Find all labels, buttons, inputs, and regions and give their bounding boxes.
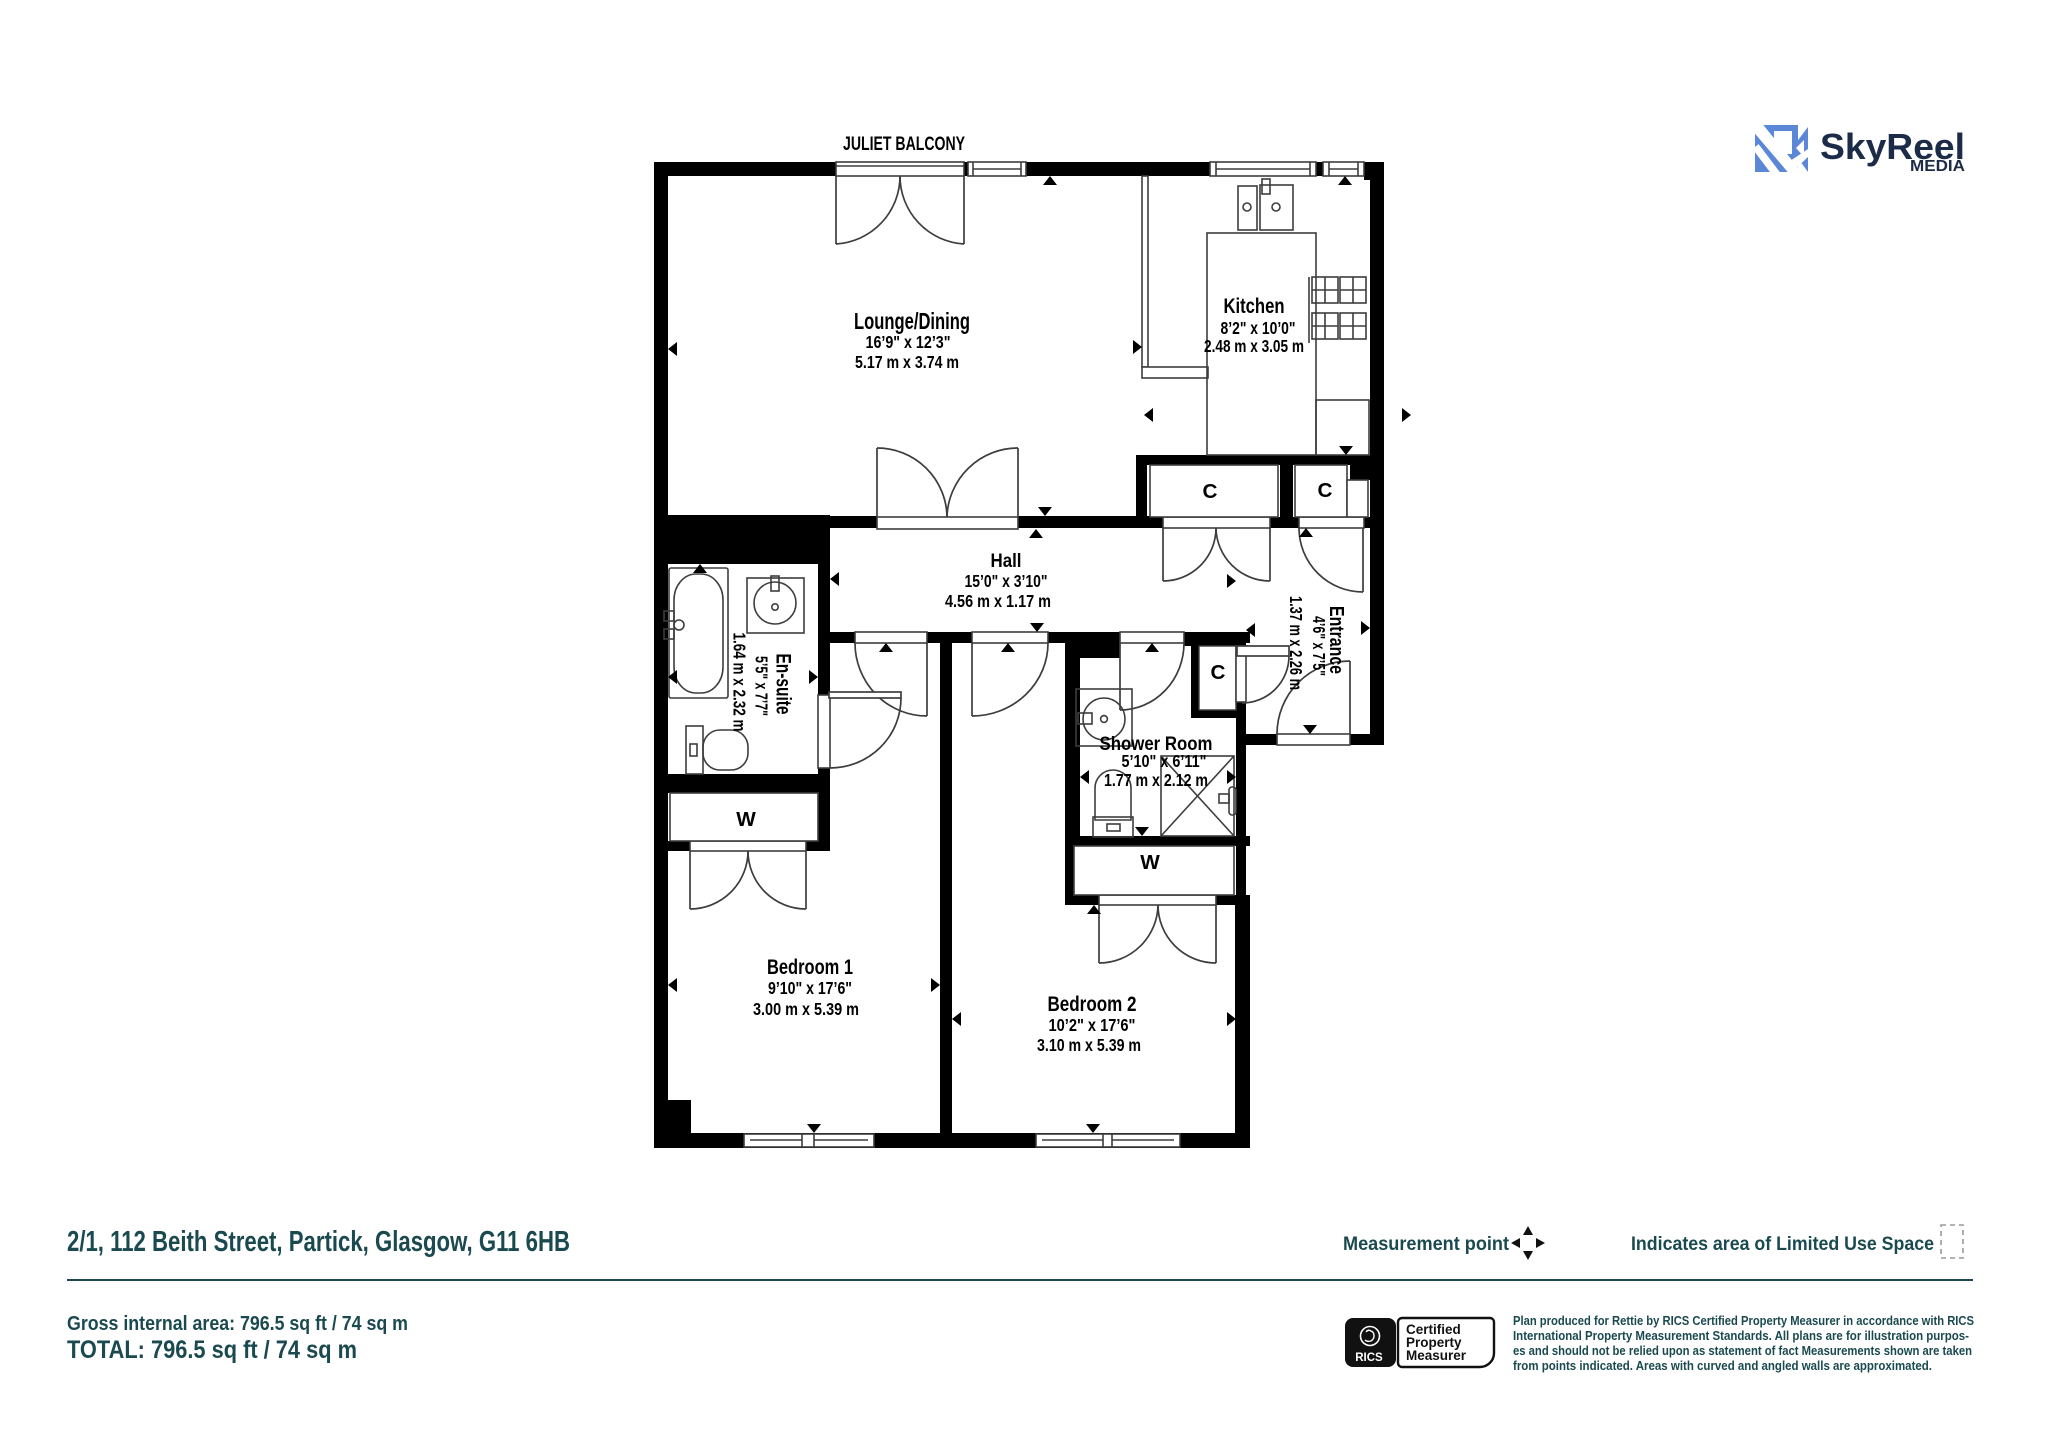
svg-text:16’9" x 12’3": 16’9" x 12’3" (866, 332, 951, 352)
svg-text:C: C (1203, 480, 1218, 503)
svg-text:Indicates area of Limited Use: Indicates area of Limited Use Space (1631, 1233, 1934, 1255)
svg-text:10’2" x 17’6": 10’2" x 17’6" (1049, 1015, 1136, 1035)
svg-text:from points indicated. Areas w: from points indicated. Areas with curved… (1513, 1358, 1932, 1373)
svg-text:Measurer: Measurer (1406, 1348, 1467, 1363)
svg-text:4.56 m x 1.17 m: 4.56 m x 1.17 m (945, 591, 1051, 611)
svg-text:MEDIA: MEDIA (1910, 158, 1965, 175)
svg-text:Bedroom 1: Bedroom 1 (767, 955, 853, 979)
svg-text:5.17 m x 3.74 m: 5.17 m x 3.74 m (855, 352, 959, 372)
svg-text:5’10" x 6’11": 5’10" x 6’11" (1122, 751, 1207, 771)
svg-text:W: W (736, 808, 756, 831)
svg-text:9’10" x 17’6": 9’10" x 17’6" (768, 978, 852, 998)
svg-text:3.00 m x 5.39 m: 3.00 m x 5.39 m (753, 999, 859, 1019)
svg-text:15’0" x 3’10": 15’0" x 3’10" (965, 571, 1048, 591)
svg-text:1.64 m x 2.32 m: 1.64 m x 2.32 m (730, 633, 750, 732)
svg-text:En-suite: En-suite (772, 654, 796, 715)
svg-text:1.77 m x 2.12 m: 1.77 m x 2.12 m (1104, 770, 1208, 790)
svg-text:C: C (1318, 479, 1333, 502)
svg-text:5’5" x 7’7": 5’5" x 7’7" (752, 656, 772, 716)
svg-text:Hall: Hall (991, 550, 1022, 572)
svg-text:Plan produced for Rettie by RI: Plan produced for Rettie by RICS Certifi… (1513, 1313, 1974, 1328)
svg-text:1.37 m x 2.26 m: 1.37 m x 2.26 m (1286, 596, 1306, 690)
svg-text:Bedroom 2: Bedroom 2 (1048, 992, 1137, 1016)
svg-text:es and should not be relied up: es and should not be relied upon as stat… (1513, 1343, 1972, 1358)
svg-text:JULIET BALCONY: JULIET BALCONY (843, 133, 965, 155)
svg-text:3.10 m x 5.39 m: 3.10 m x 5.39 m (1037, 1035, 1141, 1055)
svg-text:2.48 m x 3.05 m: 2.48 m x 3.05 m (1204, 336, 1304, 356)
svg-text:Lounge/Dining: Lounge/Dining (854, 308, 970, 334)
svg-text:Measurement point: Measurement point (1343, 1233, 1509, 1255)
svg-text:2/1, 112 Beith Street, Partick: 2/1, 112 Beith Street, Partick, Glasgow,… (67, 1226, 570, 1258)
svg-text:Gross internal area: 796.5 sq: Gross internal area: 796.5 sq ft / 74 sq… (67, 1313, 408, 1335)
svg-text:International Property Measur: International Property Measurement Stand… (1513, 1328, 1969, 1343)
svg-text:4’6" x 7’5": 4’6" x 7’5" (1309, 616, 1329, 676)
svg-text:C: C (1211, 661, 1226, 684)
svg-text:8’2" x 10’0": 8’2" x 10’0" (1221, 318, 1296, 338)
svg-text:RICS: RICS (1355, 1352, 1383, 1364)
svg-text:W: W (1140, 851, 1160, 874)
svg-text:Kitchen: Kitchen (1224, 294, 1285, 318)
svg-text:TOTAL: 796.5 sq ft / 74 sq m: TOTAL: 796.5 sq ft / 74 sq m (67, 1336, 357, 1364)
